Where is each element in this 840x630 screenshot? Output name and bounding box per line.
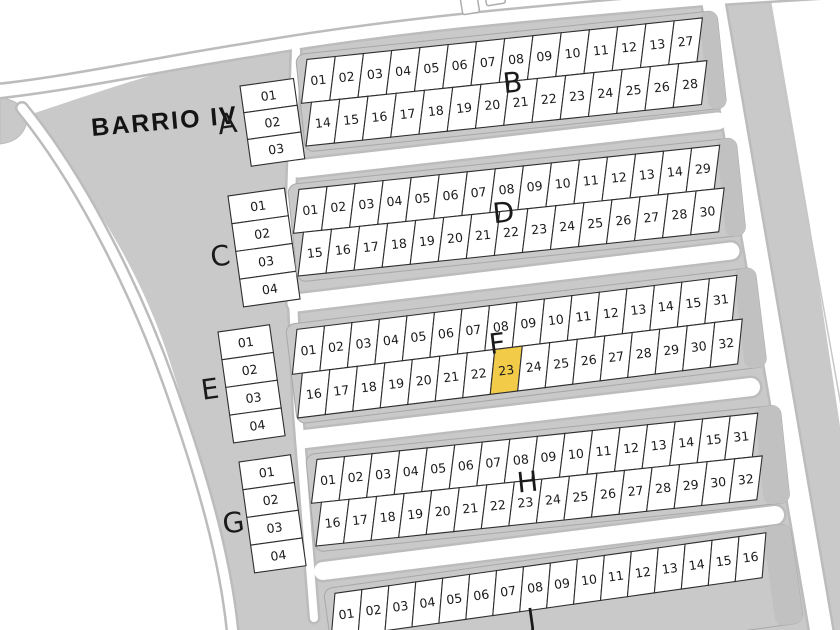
lot-H-29-label: 29 — [682, 477, 699, 494]
lot-H-12-label: 12 — [622, 440, 639, 457]
lot-C-02-label: 02 — [253, 225, 271, 242]
lot-F-05-label: 05 — [410, 328, 428, 345]
lot-J-14-label: 14 — [688, 556, 706, 573]
lot-B-03-label: 03 — [366, 66, 383, 83]
lot-D-28-label: 28 — [671, 206, 688, 223]
lot-J-05-label: 05 — [445, 590, 463, 607]
lot-F-26-label: 26 — [580, 352, 598, 369]
lot-A-02-label: 02 — [263, 114, 281, 131]
lot-C-04-label: 04 — [261, 281, 279, 298]
lot-H-11-label: 11 — [595, 443, 612, 460]
lot-B-12-label: 12 — [620, 39, 637, 56]
lot-G-04-label: 04 — [269, 547, 287, 564]
lot-G-02-label: 02 — [262, 491, 280, 508]
lot-H-07-label: 07 — [485, 454, 502, 471]
lot-J-16-label: 16 — [742, 549, 760, 566]
lot-H-10-label: 10 — [567, 446, 584, 463]
lot-H-30-label: 30 — [709, 474, 726, 491]
lot-J-01-label: 01 — [338, 605, 356, 622]
lot-F-03-label: 03 — [355, 335, 373, 352]
lot-H-32-label: 32 — [737, 471, 754, 488]
lot-E-01-label: 01 — [237, 334, 255, 351]
lot-H-09-label: 09 — [540, 448, 557, 465]
lot-F-01-label: 01 — [300, 342, 318, 359]
lot-B-26-label: 26 — [653, 79, 670, 96]
block-label-D: D — [491, 195, 516, 230]
lot-J-11-label: 11 — [607, 568, 625, 585]
lot-H-21-label: 21 — [462, 500, 479, 517]
lot-F-29-label: 29 — [662, 342, 680, 359]
lot-H-17-label: 17 — [351, 512, 368, 529]
lot-H-25-label: 25 — [572, 488, 589, 505]
lot-B-16-label: 16 — [371, 108, 388, 125]
lot-D-14-label: 14 — [666, 163, 683, 180]
lot-D-09-label: 09 — [526, 178, 543, 195]
lot-F-25-label: 25 — [552, 355, 570, 372]
lot-B-24-label: 24 — [597, 85, 614, 102]
lot-D-17-label: 17 — [362, 238, 379, 255]
lot-D-23-label: 23 — [530, 221, 547, 238]
lot-B-01-label: 01 — [310, 72, 327, 89]
lot-D-20-label: 20 — [446, 230, 463, 247]
lot-H-02-label: 02 — [347, 469, 364, 486]
lot-F-20-label: 20 — [415, 372, 433, 389]
lot-F-19-label: 19 — [387, 375, 405, 392]
lot-A-01-label: 01 — [260, 87, 278, 104]
lot-D-16-label: 16 — [334, 241, 351, 258]
lot-D-30-label: 30 — [699, 203, 716, 220]
lot-H-28-label: 28 — [654, 480, 671, 497]
lot-D-21-label: 21 — [474, 227, 491, 244]
block-label-H: H — [515, 465, 539, 500]
lot-J-02-label: 02 — [365, 602, 383, 619]
lot-F-02-label: 02 — [327, 338, 345, 355]
lot-F-13-label: 13 — [630, 301, 648, 318]
lot-D-05-label: 05 — [414, 190, 431, 207]
lot-B-23-label: 23 — [568, 88, 585, 105]
lot-J-07-label: 07 — [499, 583, 517, 600]
lot-D-11-label: 11 — [582, 172, 599, 189]
lot-H-04-label: 04 — [402, 463, 419, 480]
lot-H-16-label: 16 — [324, 514, 341, 531]
lot-E-03-label: 03 — [245, 389, 263, 406]
lot-H-15-label: 15 — [705, 431, 722, 448]
lot-H-13-label: 13 — [650, 437, 667, 454]
lot-B-04-label: 04 — [394, 63, 411, 80]
lot-F-32-label: 32 — [717, 335, 735, 352]
lot-F-15-label: 15 — [685, 294, 703, 311]
lot-C-01-label: 01 — [249, 197, 267, 214]
lot-F-23-label: 23 — [497, 362, 515, 379]
lot-B-15-label: 15 — [342, 111, 359, 128]
lot-B-09-label: 09 — [536, 48, 553, 65]
lot-H-01-label: 01 — [319, 472, 336, 489]
lot-D-24-label: 24 — [558, 218, 575, 235]
lot-H-27-label: 27 — [627, 483, 644, 500]
lot-F-11-label: 11 — [575, 308, 593, 325]
lot-H-03-label: 03 — [374, 466, 391, 483]
lot-J-15-label: 15 — [715, 552, 733, 569]
lot-H-14-label: 14 — [677, 434, 694, 451]
lot-B-02-label: 02 — [338, 69, 355, 86]
lot-F-12-label: 12 — [602, 305, 620, 322]
lot-E-04-label: 04 — [248, 417, 266, 434]
lot-B-19-label: 19 — [455, 100, 472, 117]
lot-J-03-label: 03 — [391, 598, 409, 615]
lot-F-24-label: 24 — [525, 358, 543, 375]
lot-B-13-label: 13 — [649, 36, 666, 53]
lot-D-15-label: 15 — [306, 244, 323, 261]
lot-B-14-label: 14 — [314, 114, 331, 131]
lot-J-13-label: 13 — [661, 560, 679, 577]
lot-J-06-label: 06 — [472, 586, 490, 603]
lot-B-20-label: 20 — [484, 97, 501, 114]
lot-G-01-label: 01 — [258, 464, 276, 481]
lot-D-03-label: 03 — [358, 196, 375, 213]
lot-F-30-label: 30 — [690, 338, 708, 355]
lot-F-09-label: 09 — [520, 315, 538, 332]
lot-D-27-label: 27 — [643, 209, 660, 226]
lot-D-19-label: 19 — [418, 233, 435, 250]
lot-F-07-label: 07 — [465, 321, 483, 338]
lot-B-22-label: 22 — [540, 91, 557, 108]
lot-J-09-label: 09 — [553, 575, 571, 592]
lot-F-16-label: 16 — [305, 385, 323, 402]
lot-D-13-label: 13 — [638, 166, 655, 183]
lot-J-10-label: 10 — [580, 571, 598, 588]
lot-F-06-label: 06 — [437, 325, 455, 342]
lot-B-18-label: 18 — [427, 102, 444, 119]
lot-A-03-label: 03 — [267, 141, 285, 158]
subdivision-map: BARRIO IV 010203A01020304050607080910111… — [0, 0, 840, 630]
lot-H-19-label: 19 — [406, 506, 423, 523]
lot-H-31-label: 31 — [733, 428, 750, 445]
lot-B-10-label: 10 — [564, 45, 581, 62]
lot-J-04-label: 04 — [418, 594, 436, 611]
lot-C-03-label: 03 — [257, 253, 275, 270]
lot-F-27-label: 27 — [607, 348, 625, 365]
lot-D-29-label: 29 — [694, 160, 711, 177]
lot-B-07-label: 07 — [479, 54, 496, 71]
lot-D-01-label: 01 — [302, 202, 319, 219]
lot-D-25-label: 25 — [587, 215, 604, 232]
lot-D-07-label: 07 — [470, 184, 487, 201]
lot-F-31-label: 31 — [712, 291, 730, 308]
lot-J-08-label: 08 — [526, 579, 544, 596]
lot-D-12-label: 12 — [610, 169, 627, 186]
block-label-G: G — [220, 505, 246, 541]
lot-H-05-label: 05 — [430, 460, 447, 477]
lot-B-06-label: 06 — [451, 57, 468, 74]
lot-H-24-label: 24 — [544, 491, 561, 508]
lot-B-27-label: 27 — [677, 33, 694, 50]
lot-F-21-label: 21 — [442, 369, 460, 386]
lot-D-10-label: 10 — [554, 175, 571, 192]
lot-F-28-label: 28 — [635, 345, 653, 362]
lot-D-02-label: 02 — [330, 199, 347, 216]
lot-F-10-label: 10 — [547, 311, 565, 328]
lot-F-22-label: 22 — [470, 365, 488, 382]
lot-F-14-label: 14 — [657, 298, 675, 315]
lot-D-26-label: 26 — [615, 212, 632, 229]
lot-F-18-label: 18 — [360, 379, 378, 396]
lot-D-18-label: 18 — [390, 236, 407, 253]
lot-D-06-label: 06 — [442, 187, 459, 204]
lot-F-04-label: 04 — [382, 332, 400, 349]
lot-B-05-label: 05 — [423, 60, 440, 77]
lot-G-03-label: 03 — [266, 519, 284, 536]
lot-D-04-label: 04 — [386, 193, 403, 210]
lot-H-26-label: 26 — [599, 485, 616, 502]
lot-B-11-label: 11 — [592, 42, 609, 59]
lot-F-17-label: 17 — [332, 382, 350, 399]
lot-H-22-label: 22 — [489, 497, 506, 514]
block-label-B: B — [501, 65, 524, 100]
lot-B-17-label: 17 — [399, 105, 416, 122]
lot-E-02-label: 02 — [241, 361, 259, 378]
lot-B-25-label: 25 — [625, 82, 642, 99]
lot-H-06-label: 06 — [457, 457, 474, 474]
lot-J-12-label: 12 — [634, 564, 652, 581]
lot-B-28-label: 28 — [681, 76, 698, 93]
lot-H-20-label: 20 — [434, 503, 451, 520]
lot-H-18-label: 18 — [379, 509, 396, 526]
